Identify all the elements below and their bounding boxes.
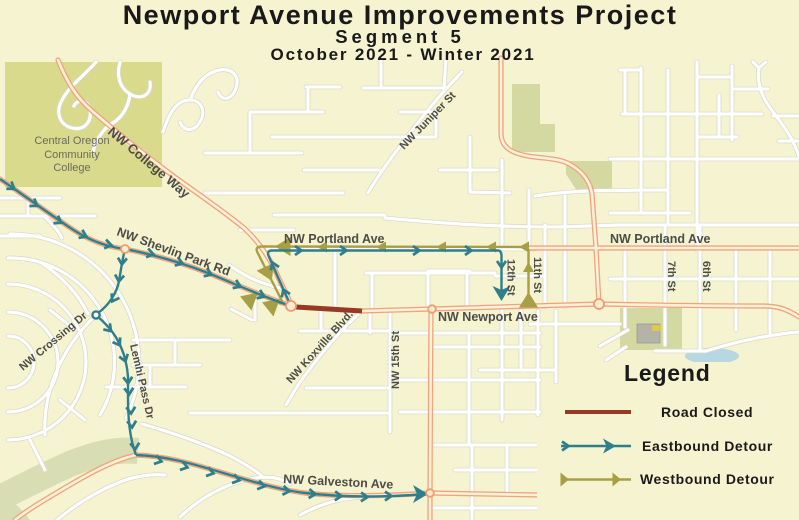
svg-text:NW Portland Ave: NW Portland Ave [610,232,711,246]
svg-text:NW Portland Ave: NW Portland Ave [284,232,385,246]
svg-text:Eastbound Detour: Eastbound Detour [642,438,773,454]
svg-text:12th St: 12th St [505,259,517,296]
svg-text:11th St: 11th St [531,257,543,293]
svg-text:7th St: 7th St [665,261,677,292]
svg-text:Legend: Legend [624,360,711,386]
svg-text:College: College [53,162,90,174]
svg-text:Community: Community [44,149,100,161]
svg-text:Segment 5: Segment 5 [335,26,465,47]
svg-text:October 2021 - Winter 2021: October 2021 - Winter 2021 [271,45,536,64]
svg-text:6th St: 6th St [700,261,712,292]
svg-text:NW 15th St: NW 15th St [390,331,402,389]
svg-text:Westbound Detour: Westbound Detour [640,471,775,487]
svg-text:NW Newport Ave: NW Newport Ave [438,310,538,324]
svg-text:Central Oregon: Central Oregon [34,135,109,147]
svg-text:Road Closed: Road Closed [661,404,753,420]
